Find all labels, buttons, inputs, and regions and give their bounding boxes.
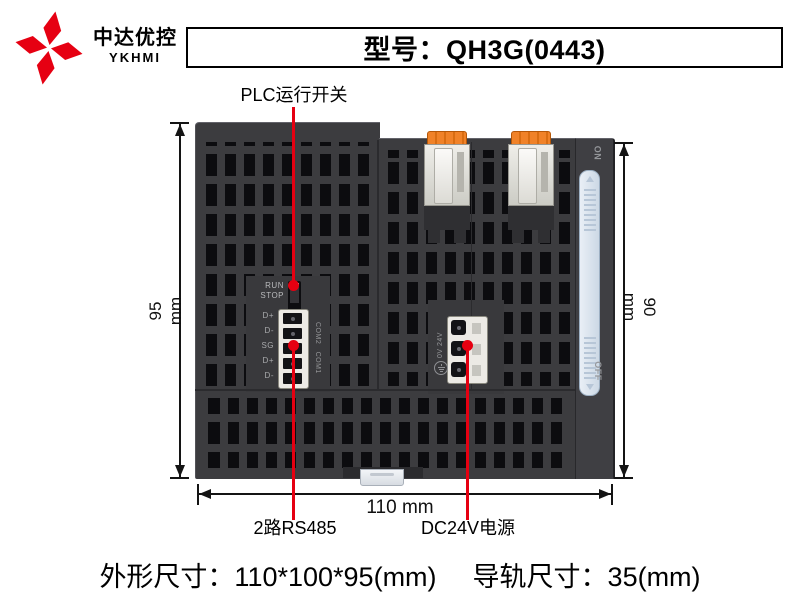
spec-sheet: 中达优控 YKHMI 型号：QH3G(0443) ON — [0, 0, 800, 600]
clamp-tab — [538, 230, 550, 243]
brand-name-en: YKHMI — [88, 50, 182, 66]
rs485-pin — [283, 313, 302, 324]
com2-label: COM2 — [314, 322, 321, 344]
plc-switch-callout-label: PLC运行开关 — [224, 84, 364, 106]
dim-arrow-down — [175, 465, 185, 477]
ground-bar — [439, 369, 444, 370]
terminal-clamp — [508, 131, 554, 243]
clamp-notch — [541, 152, 548, 192]
logo-diamond-top — [41, 10, 65, 47]
stop-label: STOP — [248, 291, 284, 301]
dim-label-90mm: 90 mm — [619, 283, 659, 331]
logo-diamond-bottom — [34, 49, 58, 86]
din-rail-clip — [360, 469, 404, 486]
run-label: RUN — [248, 281, 284, 291]
run-stop-label: RUN STOP — [248, 281, 284, 301]
logo-diamonds — [10, 7, 88, 87]
rs485-pin-label: D+ — [250, 356, 274, 371]
ground-icon — [434, 361, 448, 375]
clamp-base — [508, 206, 554, 230]
clamp-tab — [454, 230, 466, 243]
dim-arrow-left — [199, 489, 211, 499]
power-pin-label: 0V 24V — [437, 314, 444, 358]
clamp-notch — [457, 152, 464, 192]
plc-callout-dot — [288, 280, 299, 291]
rs485-pin — [283, 328, 302, 339]
rail-off-label: OFF — [593, 361, 603, 381]
rs485-callout-line — [292, 346, 295, 520]
rs485-pin-label: D+ — [250, 311, 274, 326]
rail-on-label: ON — [592, 146, 602, 161]
vent-grid — [206, 398, 568, 468]
rs485-pin-label: D- — [250, 371, 274, 386]
clamp-base — [424, 206, 470, 230]
din-clip-slot — [370, 473, 394, 476]
com1-label: COM1 — [314, 352, 321, 374]
dim-tick — [611, 484, 613, 505]
logo-diamond-right — [49, 39, 84, 62]
slider-up-arrow-icon — [586, 176, 594, 182]
clamp-lever — [518, 148, 537, 204]
rs485-pin-label: D- — [250, 326, 274, 341]
rail-size-text: 导轨尺寸：35(mm) — [473, 555, 701, 594]
brand-name-cn: 中达优控 — [88, 26, 182, 50]
dim-arrow-up — [619, 144, 629, 156]
ground-bar — [438, 367, 445, 368]
power-callout-label: DC24V电源 — [408, 517, 528, 539]
body-seam — [377, 140, 379, 389]
brand-logo-icon — [10, 7, 88, 87]
dim-arrow-down — [619, 465, 629, 477]
model-title: 型号：QH3G(0443) — [363, 28, 605, 67]
dim-tick — [170, 477, 189, 479]
dim-tick — [614, 477, 633, 479]
dim-arrow-up — [175, 124, 185, 136]
power-slot — [472, 365, 481, 376]
rs485-pin-label: SG — [250, 341, 274, 356]
dim-label-95mm: 95 mm — [146, 287, 186, 335]
clamp-tab — [512, 230, 524, 243]
power-slot — [472, 323, 481, 334]
power-plug — [451, 320, 466, 335]
plc-callout-line — [292, 107, 295, 287]
power-plug — [451, 362, 466, 377]
outline-size-text: 外形尺寸：110*100*95(mm) — [99, 555, 436, 594]
dim-line-bottom — [198, 493, 612, 495]
footer-dimensions: 外形尺寸：110*100*95(mm) 导轨尺寸：35(mm) — [0, 556, 800, 592]
dim-label-110mm: 110 mm — [330, 497, 470, 519]
ground-bar — [440, 371, 443, 372]
power-callout-line — [466, 346, 469, 520]
com-group-label: COM2 COM1 — [314, 322, 321, 388]
body-seam — [195, 389, 575, 391]
terminal-clamp — [424, 131, 470, 243]
rs485-callout-label: 2路RS485 — [235, 517, 355, 539]
clamp-lever — [434, 148, 453, 204]
clamp-tab — [428, 230, 440, 243]
logo-diamond-left — [14, 33, 49, 56]
slider-down-arrow-icon — [586, 384, 594, 390]
dim-arrow-right — [599, 489, 611, 499]
model-title-box: 型号：QH3G(0443) — [186, 27, 783, 68]
slider-ribs — [584, 187, 596, 231]
power-slot — [472, 344, 481, 355]
ground-stem — [441, 364, 442, 366]
